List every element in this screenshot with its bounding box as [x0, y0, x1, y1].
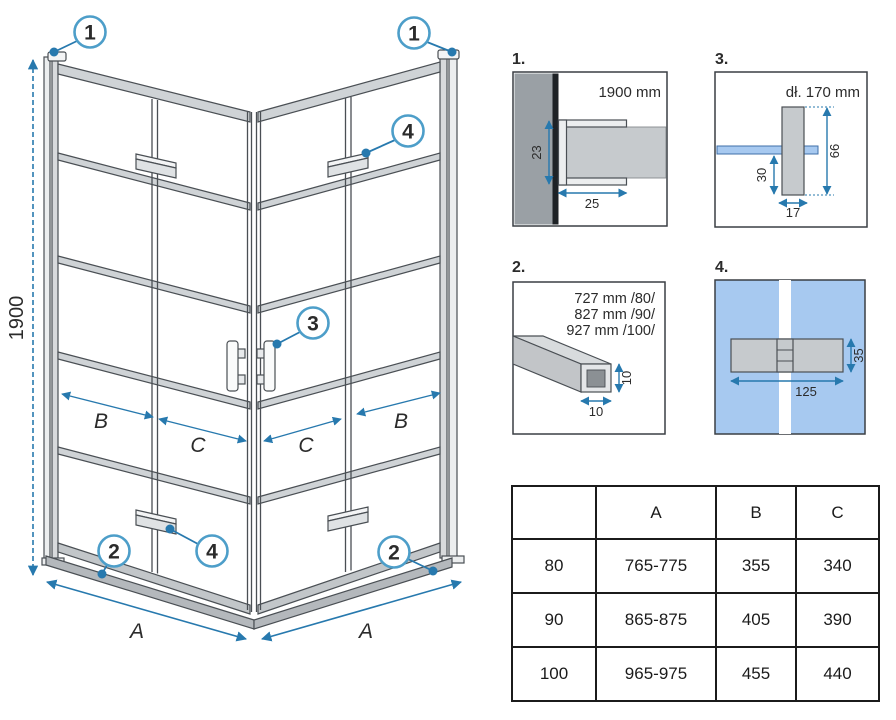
- detail-1-number: 1.: [512, 51, 525, 68]
- table-cell: 90: [512, 593, 596, 647]
- table-header-cell: [512, 486, 596, 539]
- table-cell: 390: [796, 593, 879, 647]
- table-cell: 100: [512, 647, 596, 701]
- table-header-cell: A: [596, 486, 716, 539]
- callout-4-bottom-left: 4: [166, 525, 228, 567]
- hinge-bottom-right: [328, 507, 368, 531]
- height-dimension: 1900: [6, 60, 33, 575]
- size-table: A B C 80 765-775 355 340 90 865-875 405 …: [511, 485, 880, 702]
- detail-4-dim-height: 35: [851, 348, 866, 362]
- handle-section: [782, 107, 804, 195]
- table-cell: 355: [716, 539, 796, 593]
- table-row: 80 765-775 355 340: [512, 539, 879, 593]
- enclosure-isometric-view: 1900 A A B C C B 1: [6, 17, 464, 644]
- callout-1-left: 1: [50, 17, 106, 57]
- detail-2-size-80: 727 mm /80/: [574, 291, 656, 307]
- hinge-top-right: [328, 153, 368, 177]
- detail-3-dim-width: 17: [786, 205, 800, 220]
- corner-edges: [248, 112, 261, 612]
- height-dim-label: 1900: [6, 296, 28, 341]
- detail-panel-1: 1. 1900 mm 23 25: [512, 51, 667, 226]
- table-cell: 440: [796, 647, 879, 701]
- callout-4-top-right: 4: [362, 116, 424, 158]
- detail-3-dim-total: 66: [827, 144, 842, 158]
- dim-b-left-label: B: [94, 410, 108, 433]
- handle-left: [227, 341, 245, 391]
- right-wall-rails: [254, 62, 452, 629]
- table-cell: 865-875: [596, 593, 716, 647]
- callout-2-bottom-right-num: 2: [388, 542, 400, 565]
- callout-2-bottom-left-num: 2: [108, 541, 120, 564]
- table-row: 90 865-875 405 390: [512, 593, 879, 647]
- detail-2-dim-width: 10: [589, 404, 603, 419]
- table-cell: 405: [716, 593, 796, 647]
- callout-3-num: 3: [307, 313, 319, 336]
- wall-profile-left: [42, 52, 66, 565]
- table-cell: 340: [796, 539, 879, 593]
- table-cell: 965-975: [596, 647, 716, 701]
- table-header-row: A B C: [512, 486, 879, 539]
- detail-3-number: 3.: [715, 51, 728, 68]
- callout-1-right: 1: [399, 18, 457, 57]
- detail-3-dim-lower: 30: [754, 168, 769, 182]
- detail-2-size-90: 827 mm /90/: [574, 307, 656, 323]
- width-dim-left-label: A: [128, 620, 144, 643]
- handle-right: [257, 341, 275, 391]
- glass-panel-section: [566, 127, 666, 178]
- detail-1-title: 1900 mm: [598, 84, 661, 101]
- detail-2-size-100: 927 mm /100/: [566, 323, 656, 339]
- detail-panel-3: 3. dł. 170 mm 66 30 17: [715, 51, 867, 227]
- detail-2-number: 2.: [512, 259, 525, 276]
- callout-4-top-right-num: 4: [402, 121, 414, 144]
- callout-3: 3: [273, 308, 329, 349]
- detail-3-title: dł. 170 mm: [786, 84, 860, 101]
- detail-1-dim-depth: 23: [529, 145, 544, 159]
- dim-b-right-label: B: [394, 410, 408, 433]
- table-header-cell: C: [796, 486, 879, 539]
- detail-1-dim-width: 25: [585, 196, 599, 211]
- table-cell: 765-775: [596, 539, 716, 593]
- table-cell: 80: [512, 539, 596, 593]
- callout-1-left-num: 1: [84, 22, 96, 45]
- detail-4-number: 4.: [715, 259, 728, 276]
- table-cell: 455: [716, 647, 796, 701]
- table-header-cell: B: [716, 486, 796, 539]
- callout-1-right-num: 1: [408, 23, 420, 46]
- callout-4-bottom-left-num: 4: [206, 541, 218, 564]
- detail-2-dim-height: 10: [619, 371, 634, 385]
- detail-panel-4: 4. 35 125: [715, 259, 866, 434]
- detail-panel-2: 2. 727 mm /80/ 827 mm /90/ 927 mm /100/ …: [512, 259, 665, 434]
- dim-c-right-label: C: [298, 434, 314, 457]
- table-row: 100 965-975 455 440: [512, 647, 879, 701]
- width-dim-right-label: A: [357, 620, 373, 643]
- wall-profile-right: [438, 50, 464, 563]
- detail-4-dim-width: 125: [795, 384, 817, 399]
- dim-c-left-label: C: [190, 434, 206, 457]
